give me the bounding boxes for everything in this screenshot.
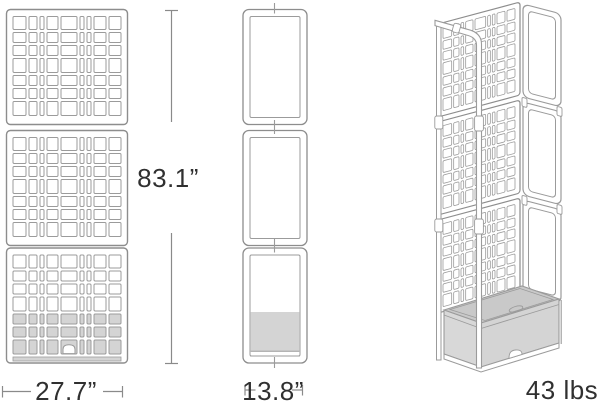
perspective-view [435,2,562,372]
diagram-canvas [0,0,600,403]
side-view [243,3,307,368]
right-side-frame [522,4,562,303]
depth-dimension-label: 13.8” [242,378,304,403]
front-view [7,10,128,364]
height-dimension-label: 83.1” [137,165,199,191]
dimension-diagram: 83.1” 27.7” 13.8” 43 lbs [0,0,600,403]
width-dimension-label: 27.7” [35,378,97,403]
weight-label: 43 lbs [526,377,598,403]
